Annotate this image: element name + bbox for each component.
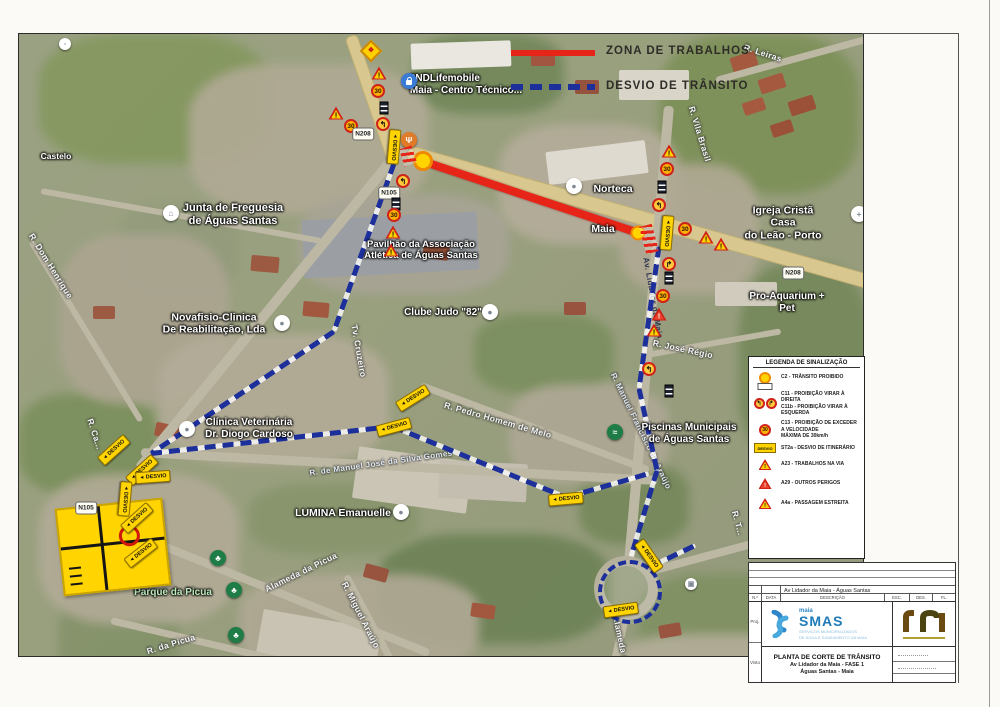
warning-triangle-sign-icon <box>662 145 677 158</box>
building-block <box>93 306 115 319</box>
satellite-map: 30 30 N208 ◄DESVIO N105 30 30 ◄DESVIO 30… <box>18 33 864 657</box>
desvio-sign-icon: DESVIO <box>754 443 775 453</box>
legend-row: A29 - OUTROS PERIGOS <box>753 478 860 489</box>
drawing-title-line1: PLANTA DE CORTE DE TRÂNSITO <box>762 654 892 661</box>
drawing-title: PLANTA DE CORTE DE TRÂNSITO Av Lidador d… <box>762 647 892 682</box>
no-right-turn-sign-icon: ↱ <box>766 398 777 409</box>
arrow-left-icon: ◄ <box>607 608 613 615</box>
drawing-title-line3: Águas Santas - Maia <box>762 669 892 675</box>
narrow-passage-triangle-icon <box>759 498 772 509</box>
contractor-logo <box>893 602 955 647</box>
contractor-logo-underline <box>903 637 945 640</box>
bus-stop-icon: ▣ <box>685 578 697 590</box>
clinic-poi-icon: ● <box>274 315 290 331</box>
speed-30-sign: 30 <box>371 84 385 98</box>
desvio-arrow-sign: ◄DESVIO <box>395 384 431 413</box>
sign-legend-box: LEGENDA DE SINALIZAÇÃO C2 - TRÂNSITO PRO… <box>748 356 865 559</box>
place-label-pro-aquarium: Pro-Aquarium + Pet <box>749 291 825 315</box>
pre-signal-board-icon <box>658 181 667 194</box>
no-left-turn-sign-icon <box>652 198 666 212</box>
place-label-novafisio: Novafisio-Clinica De Reabilitação, Lda <box>163 312 266 337</box>
lock-icon <box>401 73 417 89</box>
side-labels: Proj. Visto <box>749 602 762 682</box>
other-dangers-triangle-icon <box>759 478 772 489</box>
pre-signal-board-icon <box>380 102 389 115</box>
judo-club-poi-icon: ● <box>482 304 498 320</box>
legend-row: 30 C13 - PROIBIÇÃO DE EXCEDER A VELOCIDA… <box>753 420 860 440</box>
building-block <box>411 40 512 69</box>
arrow-left-icon: ◄ <box>139 475 144 481</box>
place-label-2ndlifemobile: 2NDLifemobile Maia - Centro Técnico... <box>410 73 522 97</box>
place-label-lumina: LUMINA Emanuelle <box>295 507 391 519</box>
place-label-norteca: Norteca <box>593 183 632 195</box>
norteca-poi-icon: ● <box>566 178 582 194</box>
veterinary-poi-icon: ● <box>179 421 195 437</box>
frame-right-line <box>958 33 959 683</box>
speed-30-sign: 30 <box>660 162 674 176</box>
page-edge-line <box>989 0 990 707</box>
street-label-r-t: R. T... <box>730 510 746 537</box>
arrow-left-icon: ◄ <box>380 426 386 433</box>
work-zone-sample-line <box>511 50 595 56</box>
drawing-title-line2: Av Lidador da Maia - FASE 1 <box>762 662 892 668</box>
park-tree-icon: ♣ <box>228 627 244 643</box>
swimming-pool-icon: ≈ <box>607 424 623 440</box>
arrow-left-icon: ◄ <box>123 485 129 490</box>
detour-legend-label: DESVIO DE TRÂNSITO <box>606 80 748 92</box>
warning-triangle-sign-icon <box>372 67 387 80</box>
town-hall-icon: ⌂ <box>163 205 179 221</box>
arrow-left-icon: ◄ <box>552 497 557 503</box>
building-block <box>302 301 329 318</box>
no-right-turn-sign-icon <box>662 257 676 271</box>
church-icon: + <box>851 206 864 222</box>
legend-row: A23 - TRABALHOS NA VIA <box>753 459 860 470</box>
legend-row: ↰↱ C11 - PROIBIÇÃO VIRAR À DIREITA C11b … <box>753 391 860 417</box>
smas-logo: maia SMAS SERVIÇOS MUNICIPALIZADOS DE ÁG… <box>762 602 892 647</box>
generic-poi-icon: ▫ <box>59 38 71 50</box>
detour-sample-line <box>511 84 595 90</box>
place-label-maia: Maia <box>591 223 614 235</box>
place-label-igreja: Igreja Cristã Casa do Leão - Porto <box>743 204 823 241</box>
warning-triangle-sign-icon <box>699 231 714 244</box>
place-label-clinica-vet: Clínica Veterinária Dr. Diogo Cardoso <box>205 417 293 441</box>
smas-logo-glyph <box>768 610 794 638</box>
n208-road-shield: N208 <box>782 267 804 280</box>
plan-sheet: 30 30 N208 ◄DESVIO N105 30 30 ◄DESVIO 30… <box>0 0 1000 707</box>
warning-triangle-sign-icon <box>652 308 667 321</box>
place-label-pavilhao: Pavilhão da Associação Atlética de Águas… <box>364 239 478 261</box>
smas-brand-subtitle: SERVIÇOS MUNICIPALIZADOS DE ÁGUA E SANEA… <box>799 629 867 639</box>
stamp-cells <box>893 647 955 682</box>
warning-triangle-sign-icon <box>714 238 729 251</box>
revision-table: Av Lidador da Maia - Águas Santas N.º DA… <box>749 563 955 602</box>
work-zone-legend-label: ZONA DE TRABALHOS <box>606 45 750 57</box>
speed-30-sign-icon: 30 <box>759 424 771 436</box>
place-label-clube-judo: Clube Judo "82" <box>404 307 482 319</box>
building-block <box>564 302 586 315</box>
frame-top-line <box>862 33 958 34</box>
legend-row: C2 - TRÂNSITO PROIBIDO <box>753 372 860 384</box>
speed-30-sign: 30 <box>678 222 692 236</box>
legend-row: A4a - PASSAGEM ESTREITA <box>753 498 860 509</box>
sign-plate-icon <box>758 383 773 390</box>
place-label-parque: Parque da Picua <box>134 587 212 599</box>
arrow-left-icon: ◄ <box>392 133 398 138</box>
pre-signal-board-icon <box>665 385 674 398</box>
sign-legend-title: LEGENDA DE SINALIZAÇÃO <box>753 360 860 368</box>
legend-row: DESVIO ST2a - DESVIO DE ITINERÁRIO <box>753 443 860 453</box>
park-tree-icon: ♣ <box>210 550 226 566</box>
place-label-junta: Junta de Freguesia de Águas Santas <box>183 202 283 228</box>
speed-30-sign: 30 <box>656 289 670 303</box>
no-left-turn-sign-icon <box>376 117 390 131</box>
place-label-piscinas: Piscinas Municipais de Águas Santas <box>641 422 736 446</box>
building-block <box>250 255 279 273</box>
terrain-patch <box>474 314 614 394</box>
smas-brand-name: SMAS <box>799 614 867 628</box>
title-block: Av Lidador da Maia - Águas Santas N.º DA… <box>748 562 956 683</box>
warning-triangle-sign-icon <box>384 244 399 257</box>
contractor-logo-glyph <box>901 609 947 635</box>
warning-triangle-sign-icon <box>386 226 401 239</box>
no-left-turn-sign-icon <box>642 362 656 376</box>
n208-road-shield: N208 <box>352 128 374 141</box>
roadworks-triangle-icon <box>759 459 772 470</box>
speed-30-sign: 30 <box>387 208 401 222</box>
warning-triangle-sign-icon <box>329 107 344 120</box>
lumina-poi-icon: ● <box>393 504 409 520</box>
arrow-left-icon: ◄ <box>665 219 671 224</box>
desvio-arrow-sign: ◄DESVIO <box>135 470 171 484</box>
place-label-castelo: Castelo <box>41 151 72 161</box>
pre-signal-board-icon <box>665 272 674 285</box>
no-left-turn-sign-icon: ↰ <box>754 398 765 409</box>
warning-triangle-sign-icon <box>647 324 662 337</box>
n105-road-shield: N105 <box>75 502 97 515</box>
park-tree-icon: ♣ <box>226 582 242 598</box>
